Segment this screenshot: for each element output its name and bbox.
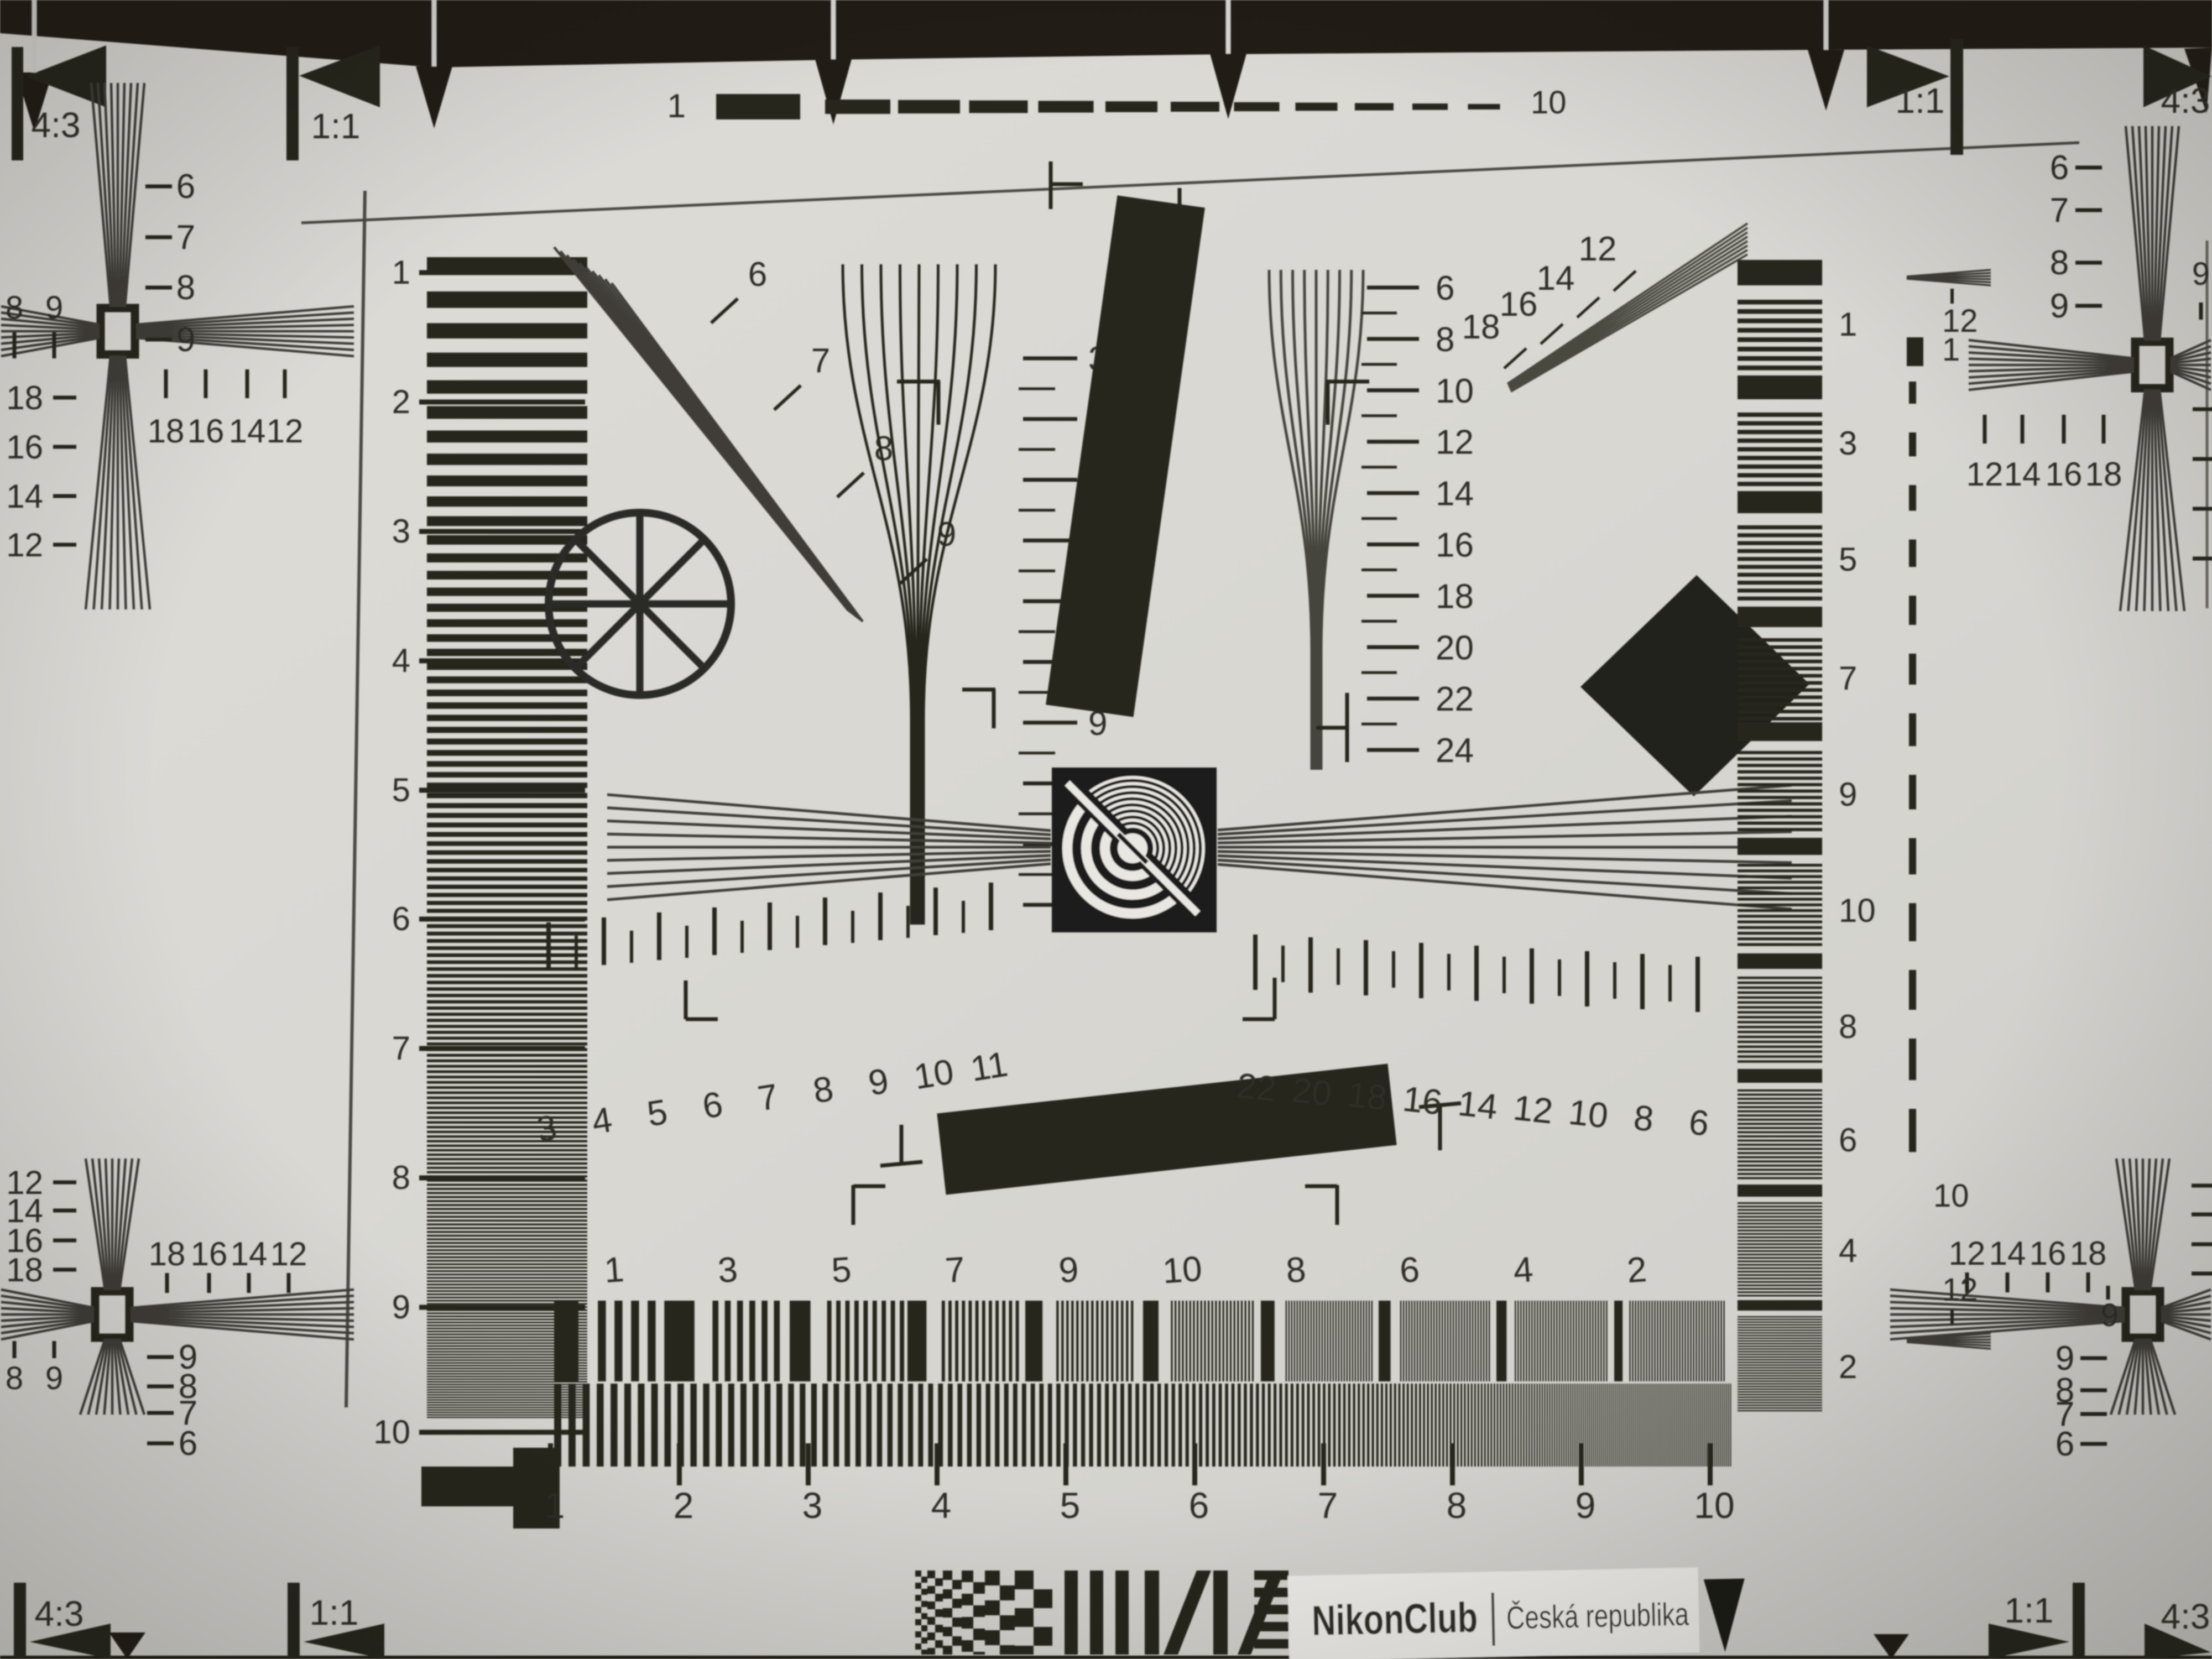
scale-label: 14	[1436, 475, 1474, 513]
region-text: Česká republika	[1506, 1597, 1689, 1636]
scale-label: 4	[931, 1485, 952, 1526]
scale-label: 2	[1839, 1348, 1857, 1385]
scale-label: 9	[2192, 256, 2210, 292]
scale-label: 10	[1567, 1092, 1610, 1136]
scale-label: 14	[231, 1235, 268, 1272]
scale-label: 9	[2101, 1297, 2119, 1333]
scale-label: 9	[45, 1360, 63, 1396]
scale-label: 16	[6, 429, 43, 466]
scale-label: 16	[2030, 1235, 2067, 1272]
aspect-ratio-label: 4:3	[2161, 1597, 2210, 1636]
scale-label: 14	[1456, 1083, 1499, 1127]
scale-label: 24	[1436, 732, 1474, 770]
scale-label: 16	[2046, 456, 2083, 493]
scale-label: 18	[1462, 308, 1500, 346]
scale-label: 6	[748, 255, 767, 294]
scale-label: 6	[1189, 1485, 1209, 1526]
scale-label: 7	[811, 342, 830, 380]
scale-label: 7	[944, 1249, 967, 1290]
scale-label: 8	[1447, 1485, 1467, 1526]
scale-label: 10	[911, 1051, 957, 1097]
scale-label: 6	[2056, 1425, 2074, 1463]
ruler-label: 8	[392, 1159, 410, 1196]
scale-label: 10	[1933, 1178, 1969, 1214]
scale-label: 1	[603, 1249, 625, 1290]
scale-label: 9	[176, 321, 195, 359]
scale-label: 4	[1512, 1249, 1535, 1290]
scale-label: 18	[148, 413, 185, 450]
ruler-label: 1	[392, 254, 410, 291]
ruler-label: 4	[392, 642, 410, 679]
scale-label: 6	[1436, 269, 1454, 307]
scale-label: 16	[191, 1235, 228, 1272]
aspect-ratio-label: 1:1	[311, 106, 361, 146]
scale-label: 5	[1060, 1485, 1081, 1526]
scale-label: 12	[6, 526, 43, 564]
scale-label: 14	[6, 478, 43, 515]
scale-label: 8	[1285, 1249, 1307, 1290]
scale-label: 10	[1436, 372, 1474, 410]
ruler-label: 3	[392, 513, 410, 550]
scale-label: 18	[1436, 577, 1474, 615]
scale-label: 2	[1626, 1249, 1648, 1290]
scale-label: 6	[1839, 1121, 1857, 1159]
scale-label: 6	[1399, 1249, 1421, 1290]
scale-label: 8	[1839, 1008, 1857, 1045]
scale-label: 7	[176, 218, 195, 257]
scale-label: 5	[1839, 541, 1857, 578]
scale-label: 14	[1989, 1235, 2026, 1272]
dash-scale-start-label: 1	[667, 87, 686, 124]
scale-label: 18	[2070, 1235, 2107, 1272]
scale-label: 10	[1839, 892, 1876, 929]
scale-label: 4	[1839, 1232, 1857, 1269]
scale-label: 16	[187, 413, 225, 450]
scale-label: 10	[1161, 1249, 1203, 1291]
scale-label: 18	[6, 379, 43, 416]
aspect-ratio-label: 4:3	[32, 105, 81, 145]
scale-label: 1	[1942, 332, 1960, 368]
scale-label: 8	[176, 269, 195, 307]
scale-label: 7	[2050, 191, 2069, 229]
aspect-ratio-label: 1:1	[2005, 1590, 2054, 1630]
scale-label: 2	[674, 1485, 694, 1526]
scale-label: 9	[1057, 1249, 1080, 1290]
sticker-divider	[1493, 1593, 1494, 1646]
scale-label: 14	[2004, 456, 2041, 493]
ruler-label: 6	[392, 900, 410, 937]
scale-label: 3	[717, 1249, 739, 1290]
scale-label: 12	[1511, 1088, 1554, 1131]
scale-label: 6	[1687, 1102, 1711, 1143]
scale-label: 12	[1436, 424, 1474, 462]
scale-label: 16	[1436, 526, 1474, 565]
scale-label: 20	[1436, 629, 1474, 667]
scale-label: 18	[1345, 1074, 1389, 1118]
spoked-wheel-pattern	[549, 513, 731, 695]
ruler-label: 2	[392, 383, 410, 420]
scale-label: 5	[830, 1249, 853, 1290]
scale-label: 1	[545, 1485, 565, 1526]
dash-scale-end-label: 10	[1531, 85, 1567, 121]
aspect-ratio-label: 1:1	[310, 1593, 359, 1632]
ruler-label: 7	[392, 1030, 410, 1067]
scale-label: 8	[6, 1360, 23, 1396]
scale-label: 7	[1839, 660, 1857, 697]
scale-label: 9	[1839, 776, 1857, 813]
aspect-ratio-label: 4:3	[2161, 81, 2210, 121]
ruler-label: 9	[392, 1288, 410, 1326]
scale-label: 6	[176, 168, 195, 206]
scale-label: 9	[1575, 1485, 1596, 1526]
ruler-label: 5	[392, 771, 410, 808]
scale-label: 6	[2050, 149, 2069, 187]
resolution-test-chart-photo: 4:31:11:14:34:31:11:14:3 110 12345678910…	[0, 0, 2212, 1659]
scale-label: 11	[968, 1044, 1010, 1089]
scale-label: 18	[6, 1251, 43, 1288]
scale-label: 12	[1966, 456, 2004, 493]
scale-label: 16	[1500, 285, 1538, 324]
scale-label: 8	[1436, 321, 1454, 359]
aspect-ratio-label: 1:1	[1896, 81, 1945, 121]
scale-label: 12	[1579, 230, 1617, 268]
scale-label: 8	[1632, 1097, 1656, 1139]
scale-label: 12	[267, 413, 304, 450]
scale-label: 1	[1839, 306, 1857, 343]
scale-label: 12	[270, 1235, 307, 1272]
scale-label: 8	[2050, 244, 2069, 282]
scale-label: 3	[802, 1485, 823, 1526]
ruler-label: 10	[373, 1413, 410, 1451]
scale-label: 14	[229, 413, 266, 450]
scale-label: 9	[2050, 287, 2069, 325]
scale-label: 9	[45, 290, 63, 326]
scale-label: 8	[6, 290, 23, 326]
nikonclub-logo-text: NikonClub	[1311, 1594, 1478, 1645]
scale-label: 12	[1942, 1272, 1978, 1308]
scale-label: 20	[1290, 1070, 1333, 1114]
scale-label: 16	[1401, 1079, 1444, 1123]
scale-label: 22	[1436, 680, 1474, 718]
scale-label: 7	[1318, 1485, 1338, 1526]
scale-label: 18	[149, 1235, 186, 1272]
scale-label: 6	[179, 1425, 197, 1463]
nikonclub-sticker: NikonClub Česká republika	[1287, 1566, 1746, 1659]
scale-label: 14	[1537, 259, 1575, 298]
scale-label: 3	[1839, 425, 1857, 462]
scale-label: 22	[1235, 1066, 1278, 1109]
aspect-ratio-label: 4:3	[35, 1594, 84, 1634]
scale-label: 10	[1694, 1485, 1734, 1526]
scale-label: 18	[2085, 456, 2122, 493]
scale-label: 12	[1949, 1235, 1986, 1272]
